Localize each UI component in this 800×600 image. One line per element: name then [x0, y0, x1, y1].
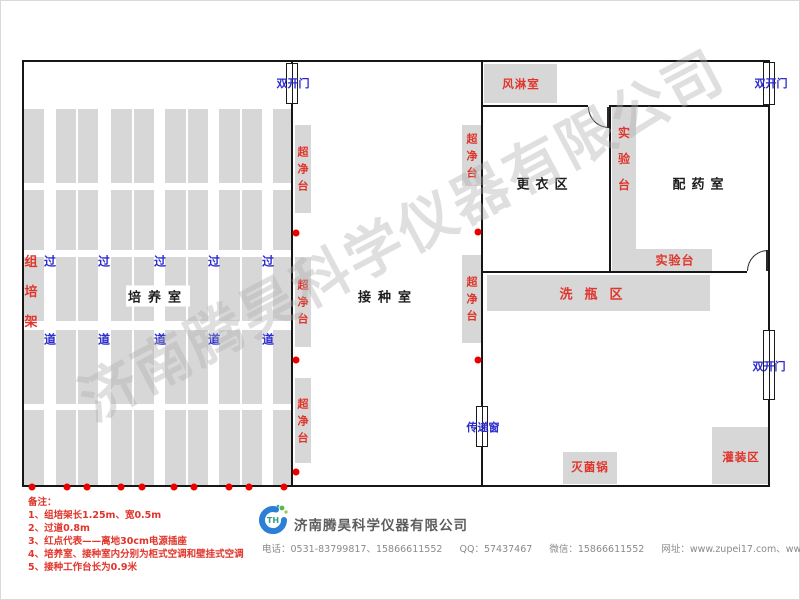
rack-segment [219, 109, 262, 183]
rack-segment [111, 410, 154, 485]
rack-segment [273, 330, 291, 404]
rack-segment [165, 330, 208, 404]
svg-text:TH: TH [267, 516, 279, 525]
rack-split-line [240, 330, 242, 404]
aisle-label-top: 过 [208, 253, 220, 270]
note-line: 5、接种工作台长为0.9米 [28, 561, 244, 574]
lab-bench-label-horizontal: 实验台 [655, 252, 694, 269]
rack-label: 组培架 [25, 248, 38, 338]
rack-split-line [132, 330, 134, 404]
aisle-label-bottom: 道 [208, 331, 220, 348]
aisle-label-top: 过 [154, 253, 166, 270]
rack-split-line [240, 257, 242, 321]
rack-segment [24, 410, 44, 485]
rack-segment [111, 190, 154, 250]
power-socket-dot [191, 484, 198, 491]
clean-bench-label: 超净台 [467, 130, 478, 181]
rack-split-line [76, 190, 78, 250]
door-label: 双开门 [753, 358, 786, 374]
aisle-label-top: 过 [98, 253, 110, 270]
rack-split-line [76, 330, 78, 404]
rack-split-line [186, 410, 188, 485]
aisle-label-top: 过 [262, 253, 274, 270]
power-socket-dot [226, 484, 233, 491]
rack-segment [165, 410, 208, 485]
rack-split-line [132, 410, 134, 485]
rack-segment [24, 109, 44, 183]
lab-bench-label-vertical: 实验台 [618, 120, 630, 198]
rack-segment [111, 330, 154, 404]
rack-split-line [76, 257, 78, 321]
rack-segment [56, 330, 98, 404]
power-socket-dot [475, 357, 482, 364]
wall-corridor [481, 105, 588, 107]
door-swing-arc [588, 107, 609, 128]
aisle-label-bottom: 道 [262, 331, 274, 348]
room-label-dispensing: 配药室 [672, 174, 729, 193]
rack-split-line [240, 410, 242, 485]
power-socket-dot [281, 484, 288, 491]
power-socket-dot [171, 484, 178, 491]
power-socket-dot [246, 484, 253, 491]
contact-line: 电话：0531-83799817、15866611552 QQ：57437467… [262, 541, 800, 555]
wall [22, 485, 770, 487]
power-socket-dot [475, 229, 482, 236]
power-socket-dot [293, 469, 300, 476]
rack-split-line [76, 410, 78, 485]
rack-segment [56, 190, 98, 250]
door-swing-arc [747, 250, 768, 271]
power-socket-dot [293, 357, 300, 364]
rack-split-line [240, 190, 242, 250]
floorplan-canvas: 济南腾昊科学仪器有限公司 培养室 接种室 更衣区 配药室 风淋室 洗瓶区 灭菌锅… [0, 0, 800, 600]
rack-split-line [132, 190, 134, 250]
wall-washing [481, 271, 747, 273]
power-socket-dot [29, 484, 36, 491]
contact-qq: QQ：57437467 [459, 544, 532, 555]
rack-segment [111, 109, 154, 183]
rack-segment [219, 257, 262, 321]
clean-bench-label: 超净台 [298, 144, 309, 195]
room-label-inoculation: 接种室 [358, 287, 418, 306]
rack-segment [56, 109, 98, 183]
wall-changing-dispensing [609, 105, 611, 273]
rack-segment [273, 257, 291, 321]
door-label: 传递窗 [467, 419, 500, 435]
equipment-label-sterilizer: 灭菌锅 [571, 459, 609, 475]
rack-segment [24, 190, 44, 250]
rack-segment [56, 257, 98, 321]
zone-label-filling: 灌装区 [722, 449, 760, 465]
rack-split-line [76, 109, 78, 183]
power-socket-dot [139, 484, 146, 491]
rack-segment [219, 330, 262, 404]
rack-split-line [186, 330, 188, 404]
aisle-label-bottom: 道 [98, 331, 110, 348]
wall-inoculation-right [481, 447, 483, 487]
zone-label-bottle-washing: 洗瓶区 [559, 284, 634, 303]
power-socket-dot [118, 484, 125, 491]
door-label: 双开门 [277, 75, 310, 91]
company-name: 济南腾昊科学仪器有限公司 [294, 514, 468, 534]
room-label-changing: 更衣区 [516, 174, 573, 193]
rack-split-line [240, 109, 242, 183]
power-socket-dot [293, 230, 300, 237]
clean-bench-label: 超净台 [467, 274, 478, 325]
note-line: 1、组培架长1.25m、宽0.5m [28, 509, 244, 522]
aisle-label-bottom: 道 [154, 331, 166, 348]
rack-segment [273, 410, 291, 485]
room-label-air-shower: 风淋室 [502, 76, 540, 92]
contact-wechat: 微信：15866611552 [549, 544, 644, 555]
aisle-label-top: 过 [44, 253, 56, 270]
door-leaf [607, 107, 609, 128]
wall [22, 60, 770, 62]
rack-segment [165, 190, 208, 250]
note-line: 4、培养室、接种室内分别为柜式空调和壁挂式空调 [28, 548, 244, 561]
rack-segment [56, 410, 98, 485]
power-socket-dot [64, 484, 71, 491]
door-leaf [766, 250, 768, 271]
notes-block: 备注： 1、组培架长1.25m、宽0.5m 2、过道0.8m 3、红点代表——离… [28, 496, 244, 574]
rack-segment [219, 190, 262, 250]
clean-bench-label: 超净台 [298, 277, 309, 328]
rack-split-line [186, 109, 188, 183]
rack-segment [219, 410, 262, 485]
wall [768, 400, 770, 487]
wall-corridor [609, 105, 770, 107]
room-label-culture: 培养室 [126, 286, 190, 307]
rack-split-line [186, 190, 188, 250]
door-label: 双开门 [755, 75, 788, 91]
aisle-label-bottom: 道 [44, 331, 56, 348]
rack-segment [165, 109, 208, 183]
company-logo-icon: TH [256, 503, 290, 537]
wall-culture-inoculation [291, 104, 293, 487]
notes-title: 备注： [28, 496, 244, 509]
rack-segment [24, 330, 44, 404]
rack-split-line [132, 109, 134, 183]
contact-phone: 电话：0531-83799817、15866611552 [262, 544, 442, 555]
wall [768, 104, 770, 330]
power-socket-dot [84, 484, 91, 491]
clean-bench-label: 超净台 [298, 395, 309, 446]
note-line: 3、红点代表——离地30cm电源插座 [28, 535, 244, 548]
note-line: 2、过道0.8m [28, 522, 244, 535]
rack-segment [273, 190, 291, 250]
rack-segment [273, 109, 291, 183]
contact-website: 网址：www.zupei17.com、www.cnhtkj.com [661, 544, 800, 555]
